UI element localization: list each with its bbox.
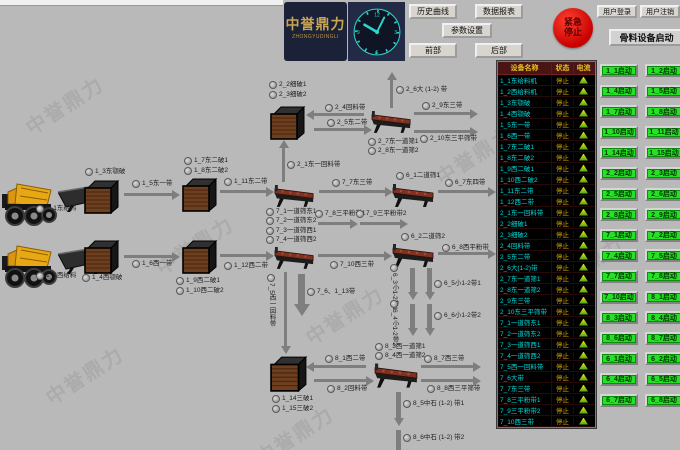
- table-row: 1_6西一带 停止: [498, 130, 595, 141]
- indicator-dot-icon: [266, 208, 274, 216]
- device-name: 7_7东三带: [498, 383, 551, 393]
- flow-label: 1_1东给料: [36, 205, 76, 213]
- device-current-cell: [573, 330, 593, 337]
- start-button[interactable]: 7_8启动: [645, 270, 680, 283]
- analog-clock: 12 3 6 9: [348, 2, 405, 61]
- device-status: 停止: [551, 218, 573, 228]
- current-gauge-icon: [579, 99, 588, 106]
- flow-arrow: [427, 304, 432, 328]
- flow-arrow: [410, 304, 415, 328]
- indicator-dot-icon: [224, 262, 232, 270]
- crusher-icon: [270, 106, 306, 140]
- current-gauge-icon: [579, 418, 588, 425]
- column-header-current: 电流: [573, 63, 593, 73]
- indicator-dot-icon: [390, 264, 398, 272]
- device-status: 停止: [551, 262, 573, 272]
- flow-label: 1_9西二破1: [176, 277, 220, 285]
- device-status: 停止: [551, 86, 573, 96]
- indicator-dot-icon: [368, 138, 376, 146]
- indicator-dot-icon: [266, 227, 274, 235]
- device-current-cell: [573, 154, 593, 161]
- flow-label: 6_8西平粉带: [442, 244, 489, 252]
- clock-face-icon: 12 3 6 9: [351, 6, 403, 58]
- flow-label: 8_7西三带: [424, 355, 464, 363]
- vibrating-screen-icon: [274, 182, 316, 208]
- flow-arrow: [124, 255, 172, 258]
- current-gauge-icon: [579, 110, 588, 117]
- flow-label: 8_4西一道筛2: [375, 352, 425, 360]
- current-gauge-icon: [579, 88, 588, 95]
- indicator-dot-icon: [403, 434, 411, 442]
- flow-arrow: [396, 392, 401, 418]
- device-name: 1_8东二破2: [498, 152, 551, 162]
- device-name: 2_5东二带: [498, 251, 551, 261]
- device-name: 2_9东三带: [498, 295, 551, 305]
- indicator-dot-icon: [375, 343, 383, 351]
- equipment-start-button-grid: 1_1启动 1_2启动 1_4启动 1_5启动 1_7启动 1_8启动 1_10…: [600, 64, 680, 407]
- current-gauge-icon: [579, 242, 588, 249]
- table-row: 7_2一道筛东2 停止: [498, 328, 595, 339]
- flow-label: 7_9三平粉带2: [356, 210, 406, 218]
- flow-arrow: [314, 113, 364, 116]
- table-row: 2_8东一道筛2 停止: [498, 284, 595, 295]
- device-current-cell: [573, 110, 593, 117]
- start-button[interactable]: 1_4启动: [600, 85, 638, 98]
- indicator-dot-icon: [403, 400, 411, 408]
- current-gauge-icon: [579, 220, 588, 227]
- flow-arrow: [438, 252, 488, 255]
- device-status: 停止: [551, 383, 573, 393]
- start-button[interactable]: 2_6启动: [645, 188, 680, 201]
- indicator-dot-icon: [132, 180, 140, 188]
- device-name: 7_10西三带: [498, 416, 551, 426]
- crusher-icon: [84, 180, 120, 214]
- current-gauge-icon: [579, 374, 588, 381]
- vibrating-screen-icon: [274, 244, 316, 270]
- device-current-cell: [573, 264, 593, 271]
- current-gauge-icon: [579, 264, 588, 271]
- svg-text:9: 9: [356, 30, 359, 36]
- device-current-cell: [573, 308, 593, 315]
- device-status: 停止: [551, 405, 573, 415]
- flow-arrow: [220, 190, 266, 193]
- table-row: 7_4一道筛西2 停止: [498, 350, 595, 361]
- device-current-cell: [573, 143, 593, 150]
- device-name: 2_1东一回料带: [498, 207, 551, 217]
- table-row: 2_5东二带 停止: [498, 251, 595, 262]
- start-button[interactable]: 7_10启动: [600, 291, 638, 304]
- user-login-button[interactable]: 用户登录: [597, 5, 637, 18]
- table-row: 2_7东一道筛1 停止: [498, 273, 595, 284]
- device-current-cell: [573, 176, 593, 183]
- start-button[interactable]: 7_1启动: [600, 229, 638, 242]
- indicator-dot-icon: [396, 86, 404, 94]
- flow-label: 2_9东三带: [422, 102, 462, 110]
- device-current-cell: [573, 385, 593, 392]
- flow-label: 6_1二道筛1: [396, 172, 440, 180]
- start-button[interactable]: 8_7启动: [645, 332, 680, 345]
- rear-section-button[interactable]: 后部: [475, 43, 523, 58]
- table-body: 1_1东给料机 停止 1_2西给料机 停止 1_3东颚破 停止: [498, 75, 595, 427]
- current-gauge-icon: [579, 319, 588, 326]
- table-row: 7_6大带 停止: [498, 372, 595, 383]
- flow-arrow: [414, 130, 470, 133]
- device-current-cell: [573, 88, 593, 95]
- flow-arrow: [298, 274, 305, 304]
- flow-arrow: [318, 222, 350, 225]
- flow-label: 2_2细破1: [269, 81, 306, 89]
- device-status: 停止: [551, 306, 573, 316]
- current-gauge-icon: [579, 231, 588, 238]
- device-current-cell: [573, 187, 593, 194]
- indicator-dot-icon: [272, 395, 280, 403]
- watermark: 中誉鼎力: [19, 68, 109, 140]
- device-current-cell: [573, 231, 593, 238]
- device-name: 7_5西一回料带: [498, 361, 551, 371]
- device-name: 7_4一道筛西2: [498, 350, 551, 360]
- window-top-strip: [0, 0, 283, 6]
- table-row: 2_2细破1 停止: [498, 218, 595, 229]
- flow-label: 7_2一道筛东2: [266, 217, 316, 225]
- crusher-icon: [182, 240, 218, 274]
- user-logout-button[interactable]: 用户注销: [640, 5, 680, 18]
- column-header-status: 状态: [551, 63, 573, 73]
- indicator-dot-icon: [420, 135, 428, 143]
- table-row: 1_3东颚破 停止: [498, 97, 595, 108]
- indicator-dot-icon: [332, 179, 340, 187]
- device-name: 2_3细破2: [498, 229, 551, 239]
- flow-arrow: [427, 268, 432, 292]
- indicator-dot-icon: [184, 167, 192, 175]
- indicator-dot-icon: [269, 91, 277, 99]
- indicator-dot-icon: [267, 274, 275, 282]
- start-button[interactable]: 7_7启动: [600, 270, 638, 283]
- indicator-dot-icon: [184, 157, 192, 165]
- device-current-cell: [573, 407, 593, 414]
- device-current-cell: [573, 341, 593, 348]
- start-button[interactable]: 1_5启动: [645, 85, 680, 98]
- device-current-cell: [573, 363, 593, 370]
- start-button[interactable]: 6_5启动: [645, 373, 680, 386]
- flow-label: 2_7东一道筛1: [368, 138, 418, 146]
- device-status: 停止: [551, 339, 573, 349]
- start-button[interactable]: 6_8启动: [645, 394, 680, 407]
- device-name: 1_10西二破2: [498, 174, 551, 184]
- emergency-stop-button[interactable]: 紧急停止: [553, 8, 593, 48]
- start-button[interactable]: 2_2启动: [600, 167, 638, 180]
- table-row: 2_3细破2 停止: [498, 229, 595, 240]
- start-button[interactable]: 7_2启动: [645, 229, 680, 242]
- data-report-button[interactable]: 数据报表: [475, 4, 523, 19]
- start-panel-title[interactable]: 骨料设备启动: [609, 29, 680, 46]
- hmi-screen: 中誉鼎力 中誉鼎力 中誉鼎力 中誉鼎力 中誉鼎力 中誉鼎力 中誉鼎力 中誉鼎力 …: [0, 0, 680, 450]
- start-button[interactable]: 1_7启动: [600, 105, 638, 118]
- device-name: 7_6大带: [498, 372, 551, 382]
- device-status: 停止: [551, 196, 573, 206]
- indicator-dot-icon: [176, 277, 184, 285]
- device-name: 7_9三平粉带2: [498, 405, 551, 415]
- current-gauge-icon: [579, 77, 588, 84]
- indicator-dot-icon: [356, 210, 364, 218]
- vibrating-screen-icon: [371, 108, 413, 134]
- flow-arrow: [282, 148, 285, 182]
- flow-label: 8_2回料带: [327, 385, 367, 393]
- indicator-dot-icon: [327, 385, 335, 393]
- indicator-dot-icon: [422, 102, 430, 110]
- flow-label: 1_6西一带: [132, 260, 172, 268]
- device-current-cell: [573, 319, 593, 326]
- parameter-settings-button[interactable]: 参数设置: [442, 23, 492, 38]
- device-status: 停止: [551, 240, 573, 250]
- start-button[interactable]: 8_4启动: [645, 311, 680, 324]
- indicator-dot-icon: [442, 244, 450, 252]
- svg-text:12: 12: [374, 12, 380, 18]
- flow-label: 1_11东二带: [224, 178, 267, 186]
- flow-arrow: [284, 272, 287, 346]
- device-name: 1_12西二带: [498, 196, 551, 206]
- indicator-dot-icon: [287, 161, 295, 169]
- flow-label: 1_7东二破1: [184, 157, 228, 165]
- flow-label: 8_6中石 (1-2) 带2: [403, 434, 464, 442]
- flow-label: 7_10西三带: [330, 261, 374, 269]
- indicator-dot-icon: [325, 104, 333, 112]
- start-button[interactable]: 6_4启动: [600, 373, 638, 386]
- current-gauge-icon: [579, 308, 588, 315]
- table-row: 2_9东三带 停止: [498, 295, 595, 306]
- device-name: 1_6西一带: [498, 130, 551, 140]
- start-button[interactable]: 1_8启动: [645, 105, 680, 118]
- device-status: 停止: [551, 372, 573, 382]
- flow-label: 7_5西一回料带: [266, 274, 276, 326]
- current-gauge-icon: [579, 165, 588, 172]
- flow-label: 7_1一道筛东1: [266, 208, 316, 216]
- flow-label: 6_5小1-2带1: [434, 280, 481, 288]
- device-current-cell: [573, 253, 593, 260]
- device-status: 停止: [551, 141, 573, 151]
- flow-label: 1_4西颚破: [82, 274, 122, 282]
- dump-truck-icon: [1, 176, 57, 230]
- device-status: 停止: [551, 185, 573, 195]
- device-status: 停止: [551, 163, 573, 173]
- device-current-cell: [573, 220, 593, 227]
- start-button[interactable]: 8_3启动: [600, 311, 638, 324]
- device-status: 停止: [551, 284, 573, 294]
- current-gauge-icon: [579, 286, 588, 293]
- flow-label: 2_4回料带: [325, 104, 365, 112]
- flow-label: 8_3西一道筛1: [375, 343, 425, 351]
- flow-arrow: [314, 365, 366, 368]
- flow-label: 1_12西二带: [224, 262, 268, 270]
- flow-label: 2_5东二带: [327, 119, 367, 127]
- flow-label: 8_5中石 (1-2) 带1: [403, 400, 464, 408]
- indicator-dot-icon: [132, 260, 140, 268]
- svg-text:6: 6: [375, 49, 378, 55]
- flow-label: 6_7东四带: [445, 179, 485, 187]
- table-row: 7_8三平粉带1 停止: [498, 394, 595, 405]
- device-status: 停止: [551, 328, 573, 338]
- device-name: 7_3一道筛西1: [498, 339, 551, 349]
- device-name: 1_3东颚破: [498, 97, 551, 107]
- flow-label: 2_6大 (1-2) 带: [396, 86, 447, 94]
- device-status: 停止: [551, 108, 573, 118]
- flow-arrow: [314, 379, 366, 382]
- table-row: 1_2西给料机 停止: [498, 86, 595, 97]
- indicator-dot-icon: [82, 274, 90, 282]
- start-button[interactable]: 6_2启动: [645, 352, 680, 365]
- current-gauge-icon: [579, 396, 588, 403]
- start-button[interactable]: 6_7启动: [600, 394, 638, 407]
- start-button[interactable]: 1_10启动: [600, 126, 638, 139]
- device-status: 停止: [551, 273, 573, 283]
- indicator-dot-icon: [330, 261, 338, 269]
- svg-text:3: 3: [394, 30, 397, 36]
- indicator-dot-icon: [434, 280, 442, 288]
- indicator-dot-icon: [36, 272, 44, 280]
- device-status: 停止: [551, 229, 573, 239]
- indicator-dot-icon: [176, 287, 184, 295]
- indicator-dot-icon: [396, 172, 404, 180]
- table-row: 1_8东二破2 停止: [498, 152, 595, 163]
- device-name: 1_11东二带: [498, 185, 551, 195]
- front-section-button[interactable]: 前部: [409, 43, 457, 58]
- table-row: 7_5西一回料带 停止: [498, 361, 595, 372]
- indicator-dot-icon: [325, 355, 333, 363]
- flow-label: 1_2西给料: [36, 272, 76, 280]
- device-current-cell: [573, 77, 593, 84]
- device-status: 停止: [551, 119, 573, 129]
- current-gauge-icon: [579, 341, 588, 348]
- start-button[interactable]: 2_8启动: [600, 208, 638, 221]
- device-name: 7_1一道筛东1: [498, 317, 551, 327]
- current-gauge-icon: [579, 297, 588, 304]
- table-row: 2_6大(1-2)带 停止: [498, 262, 595, 273]
- start-button[interactable]: 1_1启动: [600, 64, 638, 77]
- flow-label: 7_7东三带: [332, 179, 372, 187]
- device-current-cell: [573, 396, 593, 403]
- start-button[interactable]: 6_1启动: [600, 352, 638, 365]
- device-current-cell: [573, 286, 593, 293]
- device-name: 2_6大(1-2)带: [498, 262, 551, 272]
- device-name: 1_2西给料机: [498, 86, 551, 96]
- device-name: 2_8东一道筛2: [498, 284, 551, 294]
- flow-arrow: [410, 268, 415, 292]
- flow-label: 7_3一道筛西1: [266, 227, 316, 235]
- table-row: 7_3一道筛西1 停止: [498, 339, 595, 350]
- device-current-cell: [573, 165, 593, 172]
- current-gauge-icon: [579, 330, 588, 337]
- device-status: 停止: [551, 295, 573, 305]
- start-button[interactable]: 8_6启动: [600, 332, 638, 345]
- table-header-row: 设备名称 状态 电流: [498, 62, 595, 75]
- start-button[interactable]: 1_11启动: [645, 126, 680, 139]
- indicator-dot-icon: [427, 385, 435, 393]
- device-name: 2_10东三平筛带: [498, 306, 551, 316]
- device-current-cell: [573, 418, 593, 425]
- device-name: 2_7东一道筛1: [498, 273, 551, 283]
- current-gauge-icon: [579, 198, 588, 205]
- device-current-cell: [573, 297, 593, 304]
- start-button[interactable]: 7_4启动: [600, 249, 638, 262]
- flow-label: 7_4一道筛西2: [266, 236, 316, 244]
- indicator-dot-icon: [434, 312, 442, 320]
- history-curve-button[interactable]: 历史曲线: [409, 4, 457, 19]
- table-row: 2_4回料带 停止: [498, 240, 595, 251]
- current-gauge-icon: [579, 132, 588, 139]
- start-button[interactable]: 1_14启动: [600, 146, 638, 159]
- indicator-dot-icon: [327, 119, 335, 127]
- table-row: 1_4西颚破 停止: [498, 108, 595, 119]
- device-name: 1_7东二破1: [498, 141, 551, 151]
- start-button[interactable]: 2_3启动: [645, 167, 680, 180]
- indicator-dot-icon: [85, 168, 93, 176]
- start-button[interactable]: 1_15启动: [645, 146, 680, 159]
- current-gauge-icon: [579, 352, 588, 359]
- indicator-dot-icon: [269, 81, 277, 89]
- device-current-cell: [573, 99, 593, 106]
- current-gauge-icon: [579, 253, 588, 260]
- table-row: 7_1一道筛东1 停止: [498, 317, 595, 328]
- current-gauge-icon: [579, 275, 588, 282]
- device-name: 1_4西颚破: [498, 108, 551, 118]
- device-current-cell: [573, 275, 593, 282]
- crusher-icon: [182, 178, 218, 212]
- device-status: 停止: [551, 416, 573, 426]
- flow-label: 7_6、1_13带: [307, 288, 355, 296]
- start-button[interactable]: 8_1启动: [645, 291, 680, 304]
- flow-arrow: [319, 190, 385, 193]
- device-name: 7_2一道筛东2: [498, 328, 551, 338]
- indicator-dot-icon: [272, 405, 280, 413]
- flow-arrow: [220, 254, 266, 257]
- indicator-dot-icon: [266, 217, 274, 225]
- device-status: 停止: [551, 361, 573, 371]
- vibrating-screen-icon: [392, 181, 436, 208]
- start-button[interactable]: 2_5启动: [600, 188, 638, 201]
- flow-arrow: [421, 365, 473, 368]
- device-status: 停止: [551, 207, 573, 217]
- table-row: 1_9西二破1 停止: [498, 163, 595, 174]
- device-status: 停止: [551, 97, 573, 107]
- device-name: 7_8三平粉带1: [498, 394, 551, 404]
- current-gauge-icon: [579, 176, 588, 183]
- flow-label: 1_14三破1: [272, 395, 313, 403]
- device-current-cell: [573, 198, 593, 205]
- device-status: 停止: [551, 152, 573, 162]
- device-status: 停止: [551, 75, 573, 85]
- indicator-dot-icon: [315, 210, 323, 218]
- indicator-dot-icon: [36, 205, 44, 213]
- indicator-dot-icon: [307, 288, 315, 296]
- flow-label: 1_8东二破2: [184, 167, 228, 175]
- flow-label: 2_3细破2: [269, 91, 306, 99]
- current-gauge-icon: [579, 154, 588, 161]
- start-button[interactable]: 7_5启动: [645, 249, 680, 262]
- table-row: 1_10西二破2 停止: [498, 174, 595, 185]
- device-current-cell: [573, 121, 593, 128]
- table-row: 1_11东二带 停止: [498, 185, 595, 196]
- device-current-cell: [573, 209, 593, 216]
- start-button[interactable]: 1_2启动: [645, 64, 680, 77]
- device-status: 停止: [551, 350, 573, 360]
- crusher-icon: [84, 240, 120, 274]
- indicator-dot-icon: [266, 236, 274, 244]
- table-row: 7_7东三带 停止: [498, 383, 595, 394]
- current-gauge-icon: [579, 187, 588, 194]
- start-button[interactable]: 2_9启动: [645, 208, 680, 221]
- watermark: 中誉鼎力: [39, 338, 129, 410]
- current-gauge-icon: [579, 363, 588, 370]
- table-row: 7_10西三带 停止: [498, 416, 595, 427]
